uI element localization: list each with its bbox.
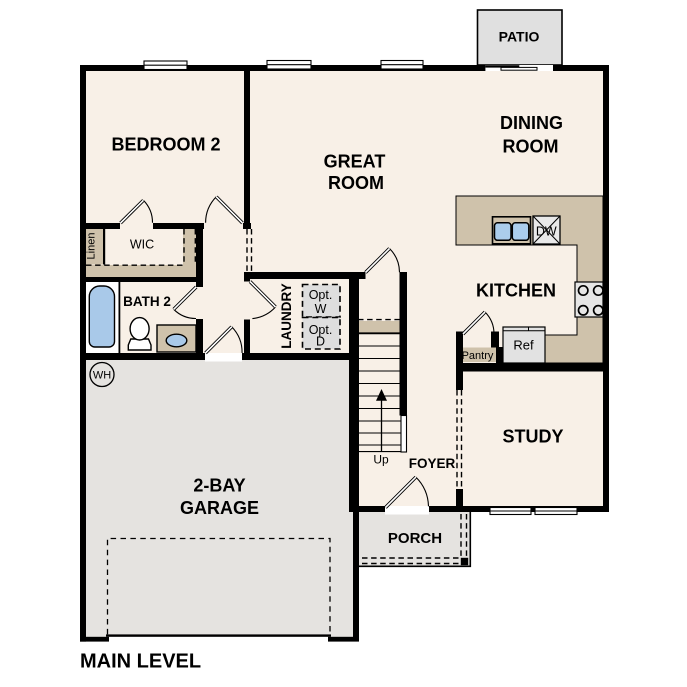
svg-text:Ref: Ref	[513, 338, 534, 353]
svg-text:DW: DW	[536, 224, 557, 238]
svg-text:Pantry: Pantry	[462, 350, 494, 362]
svg-text:Up: Up	[373, 453, 389, 467]
svg-text:LAUNDRY: LAUNDRY	[279, 283, 294, 349]
svg-text:GARAGE: GARAGE	[180, 498, 259, 518]
svg-text:STUDY: STUDY	[502, 427, 563, 447]
svg-text:D: D	[316, 335, 325, 349]
svg-text:GREAT: GREAT	[324, 152, 386, 172]
svg-text:BEDROOM 2: BEDROOM 2	[111, 135, 220, 155]
svg-text:W: W	[315, 302, 327, 316]
svg-text:ROOM: ROOM	[503, 137, 559, 157]
svg-text:Opt.: Opt.	[309, 288, 333, 302]
svg-text:BATH 2: BATH 2	[123, 294, 171, 309]
svg-text:KITCHEN: KITCHEN	[476, 281, 556, 301]
svg-text:2-BAY: 2-BAY	[193, 476, 245, 496]
svg-text:WIC: WIC	[130, 238, 154, 252]
svg-text:WH: WH	[93, 370, 111, 382]
svg-text:FOYER: FOYER	[409, 456, 456, 471]
svg-text:PORCH: PORCH	[388, 530, 442, 547]
svg-text:Linen: Linen	[86, 233, 98, 260]
svg-text:PATIO: PATIO	[499, 29, 540, 45]
svg-text:MAIN LEVEL: MAIN LEVEL	[80, 651, 201, 673]
svg-text:DINING: DINING	[500, 113, 563, 133]
svg-text:ROOM: ROOM	[328, 173, 384, 193]
